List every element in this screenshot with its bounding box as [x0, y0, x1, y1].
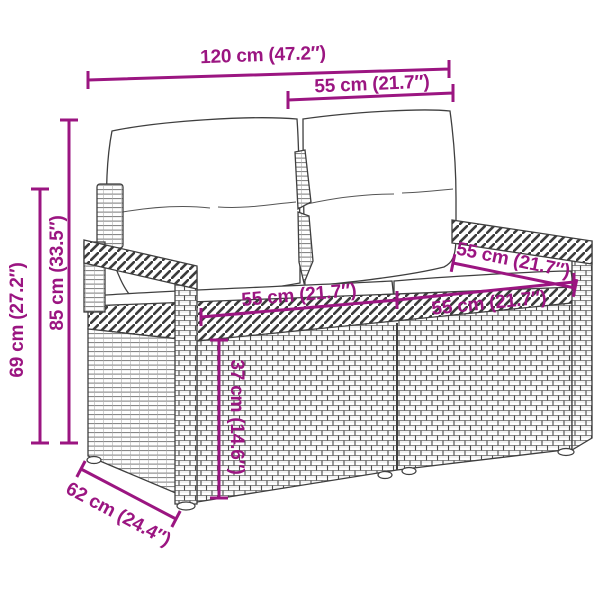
dim-label-overall-width: 120 cm (47.2″)	[200, 43, 326, 69]
dim-label-base-height: 37 cm (14.6″)	[225, 359, 247, 474]
dim-label-secondary-height: 69 cm (27.2″)	[7, 262, 29, 377]
dim-label-total-height: 85 cm (33.5″)	[47, 215, 69, 330]
dimension-diagram: 120 cm (47.2″) 55 cm (21.7″) 85 cm (33.5…	[0, 0, 600, 600]
